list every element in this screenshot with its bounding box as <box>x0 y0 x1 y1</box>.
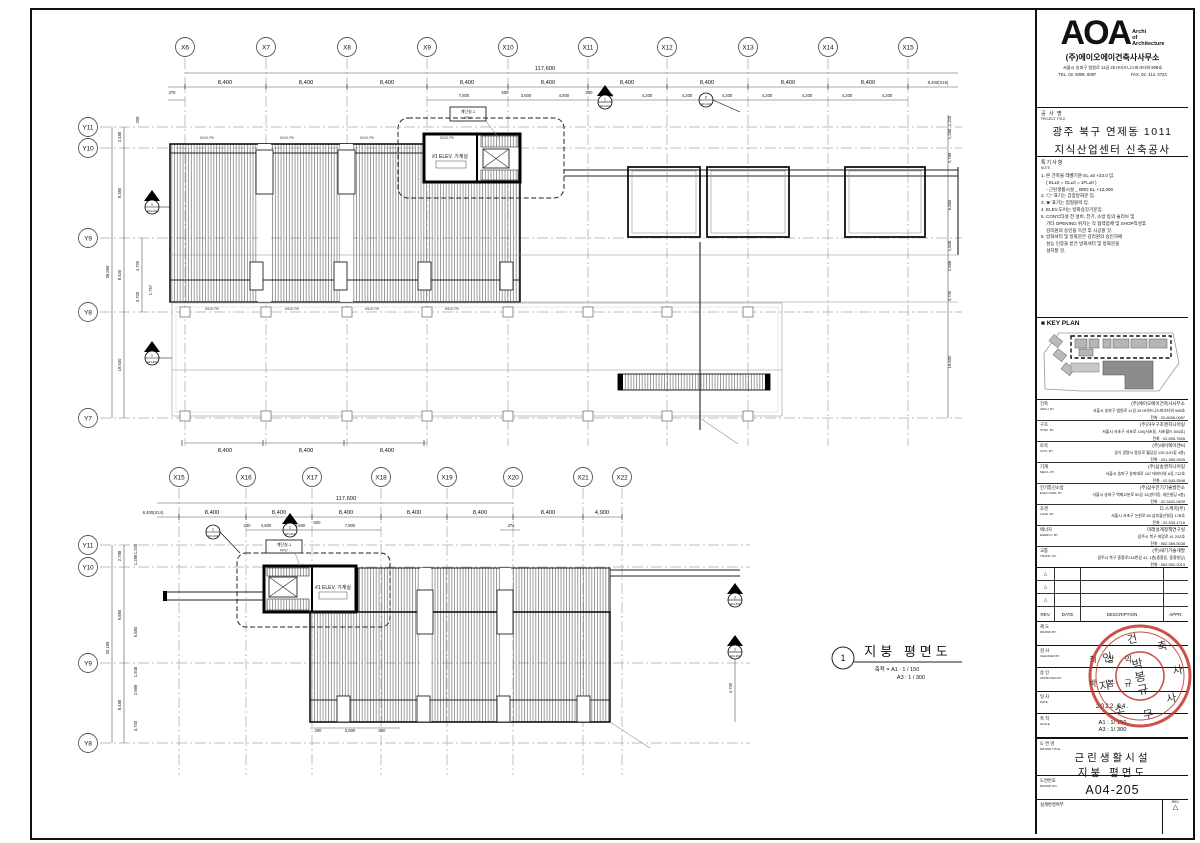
dim-sub: 200 <box>586 90 594 95</box>
section-marker: 1A04-202 <box>144 190 170 214</box>
scale-row: 축 척SCALE. A1 : 1/ 150 A3 : 1/ 300 <box>1037 714 1188 738</box>
dim: 6,880 <box>133 626 138 637</box>
consultant-energy: 에너지ENERGY. BY미래설계정책연구실광주시 북구 희망로 41 202호… <box>1037 526 1188 547</box>
roof-drain-box <box>417 590 433 634</box>
dim-sub: 4,200 <box>642 93 653 98</box>
project-title-line1: 광주 북구 연제동 1011 <box>1041 124 1184 139</box>
svg-text:A04-202: A04-202 <box>208 534 219 538</box>
grid-bubble: Y10 <box>82 146 94 153</box>
dim: 8,400 <box>299 80 314 86</box>
dim: 208 <box>135 116 140 124</box>
dim: 8,400 <box>218 80 233 86</box>
roof-hatch-bottom <box>310 612 610 722</box>
roof-drain-box <box>256 150 273 194</box>
dim: 4,700 <box>135 260 140 271</box>
dim: 3,700 <box>947 290 952 301</box>
dim: 1,200 <box>133 543 138 554</box>
dim: 8,400 <box>218 448 233 454</box>
grid-bubble: X13 <box>742 45 754 52</box>
drawing-caption: 1 지붕 평면도 축척 = A1 : 1 / 150 A3 : 1 / 300 <box>832 644 962 681</box>
scale-value-a1: A1 : 1/ 150 <box>1041 720 1184 726</box>
grid-bubble: X20 <box>507 475 519 482</box>
caption-title: 지붕 평면도 <box>864 644 951 659</box>
project-title-section: 공 사 명 PROJECT TITLE. 광주 북구 연제동 1011 지식산업… <box>1037 108 1188 157</box>
roof-frame <box>845 167 925 237</box>
note-line: 1. 본 건축물 레벨기준 EL ±0 +23.0 임. <box>1041 173 1184 180</box>
drawing-number: A04-205 <box>1041 783 1184 797</box>
dim: 2,988 <box>133 684 138 695</box>
drawing-title-line1: 근린생활시설 <box>1041 750 1184 765</box>
date-value: 2022.04. <box>1041 703 1184 710</box>
grid-bubble: X16 <box>240 475 252 482</box>
grid-bubble: X6 <box>181 45 189 52</box>
dim: 8,400 <box>117 269 122 280</box>
elev-room-label: #1 ELEV. 기계실 <box>432 153 468 160</box>
dim: 8,400 <box>407 510 422 516</box>
notes-label: 특기사항 <box>1041 159 1184 166</box>
roof-hatch-band <box>358 568 610 612</box>
caption-scale-1: 축척 = A1 : 1 / 150 <box>875 665 920 673</box>
dim: 3,700 <box>133 720 138 731</box>
dim-sub: 3,600 <box>521 93 532 98</box>
revision-row: △ <box>1037 581 1188 594</box>
roof-drain-box <box>500 262 513 290</box>
drain-label: Ø100 PB <box>365 307 379 311</box>
dim: 8,400 <box>205 510 220 516</box>
scale-value-a3: A3 : 1/ 300 <box>1041 727 1184 733</box>
dim: 1,288 <box>947 128 952 139</box>
revision-row: △ <box>1037 594 1188 607</box>
caption-number: 1 <box>840 653 845 663</box>
section-marker: 1A04-203 <box>727 635 743 659</box>
note-line: 5. CON'C타설 전 설비, 전기, 소방 등의 슬리브 및 <box>1041 214 1184 221</box>
note-line: 기타 OPENING 위치는 각 협력업체 및 SHOP작성후 <box>1041 221 1184 228</box>
dim-total: 117,600 <box>535 66 556 72</box>
grid-bubble: X15 <box>902 45 914 52</box>
dim: 1,848 <box>133 666 138 677</box>
roof-drain-box <box>250 262 263 290</box>
drain-label: Ø100 PB <box>280 136 294 140</box>
note-line: 성능 인증을 받은 방화셔터 및 방화문을 <box>1041 241 1184 248</box>
grid-bubble: X12 <box>661 45 673 52</box>
dim: 1,200 <box>947 115 952 126</box>
drawn-by-row: 제 도DRAWN BY. <box>1037 622 1188 646</box>
roof-drain-box <box>417 696 430 722</box>
dim-sub: 4,200 <box>722 93 733 98</box>
elev-room-label: #1 ELEV. 기계실 <box>315 584 351 591</box>
drain-label: Ø100 PB <box>445 307 459 311</box>
dim-edge: 8,400(X14) <box>143 510 164 515</box>
roof-drain-box <box>337 696 350 722</box>
grid-bubble: X11 <box>583 45 594 52</box>
date-row: 일 자DATE. 2022.04. <box>1037 692 1188 714</box>
dim-sub: 200 <box>315 728 323 733</box>
dim-edge: 8,400(X16) <box>928 80 949 85</box>
grid-bubble: Y9 <box>84 236 92 243</box>
roof-drain-box <box>577 696 590 722</box>
grid-bubble: X18 <box>375 475 387 482</box>
dim: 8,400 <box>541 80 556 86</box>
dim-ytotal: 39,868 <box>105 265 110 278</box>
grid-bubble: X7 <box>262 45 270 52</box>
note-line: 설치할 것. <box>1041 248 1184 255</box>
dim: 8,400 <box>380 448 395 454</box>
dim: 8,488 <box>117 699 122 710</box>
dim: 8,400 <box>299 448 314 454</box>
lower-roof-outline <box>172 303 782 416</box>
consultants-section: 건축ARCH. BY(주)에이오에이건축사사무소서울시 송파구 법원로 11길 … <box>1037 400 1188 568</box>
drain-label: Ø100 PB <box>360 136 374 140</box>
dim: 8,400 <box>272 510 287 516</box>
dim: 3,700 <box>135 291 140 302</box>
dim: 2,788 <box>117 550 122 561</box>
grid-bubble: Y7 <box>84 416 92 423</box>
consultant-structure: 구조STRU. BY(주)하우구조엔지니어링서울시 서초구 서초로 100(서초… <box>1037 421 1188 442</box>
section-marker: 1A04-202 <box>206 525 240 553</box>
dim-total: 117,600 <box>336 496 357 502</box>
aoa-logo-subtext: Archi of Architecture <box>1132 29 1164 47</box>
project-title-line2: 지식산업센터 신축공사 <box>1041 142 1184 157</box>
dim: 2,988 <box>947 260 952 271</box>
grid-bubble: X10 <box>502 45 514 52</box>
dim: 4,900 <box>595 510 610 516</box>
dim-sub: 375 <box>508 523 516 528</box>
plan-top: X6 X7 X8 X9 X10 X11 X12 X13 X14 X15 Y11 … <box>79 38 963 455</box>
firm-address: 서울시 송파구 법원로 11길 25 H비즈니스파크타워 908호 <box>1041 65 1184 71</box>
notes-section: 특기사항 NOTE. 1. 본 건축물 레벨기준 EL ±0 +23.0 임. … <box>1037 157 1188 318</box>
firm-fax: FAX. 02. 412. 0723 <box>1131 72 1167 77</box>
roof-drain-box <box>334 262 347 290</box>
dim-sub: 4,600 <box>261 523 272 528</box>
louver-strip <box>618 374 770 390</box>
section-marker: 1A04-203 <box>144 341 172 365</box>
dim: 1,288 <box>133 554 138 565</box>
revision-check-row: 설계변경여부 REV.△ <box>1037 800 1188 834</box>
dim: 6,880 <box>947 199 952 210</box>
roof-frame <box>628 167 700 237</box>
dim-ytotal: 20,188 <box>105 641 110 654</box>
section-marker: 2A04-202 <box>699 93 740 112</box>
drain-label: Ø100 PB <box>205 307 219 311</box>
revision-row: △ <box>1037 568 1188 581</box>
note-line: 4. ELEV.도어는 방화승강기문임. <box>1041 207 1184 214</box>
firm-name: (주)에이오에이건축사사무소 <box>1041 52 1184 63</box>
dim: 1,848 <box>947 240 952 251</box>
svg-text:계단실-1: 계단실-1 <box>461 108 476 114</box>
roof-drain-box <box>418 262 431 290</box>
consultant-elec-fire: 전기통신소방ELEC/ FIRE. BY(주)삼수전기기술발전소서울시 송파구 … <box>1037 484 1188 505</box>
dim-sub: 7,800 <box>345 523 356 528</box>
grid-bubble: X8 <box>343 45 351 52</box>
grid-bubble: Y8 <box>84 310 92 317</box>
dim-sub: 4,200 <box>882 93 893 98</box>
section-marker: 2A04-203 <box>727 583 743 607</box>
dim-sub: 4,200 <box>802 93 813 98</box>
svg-text:A04-202: A04-202 <box>600 104 611 108</box>
dim: 2,788 <box>947 152 952 163</box>
key-plan-map <box>1041 327 1184 393</box>
logo-section: AOA Archi of Architecture (주)에이오에이건축사사무소… <box>1037 10 1188 108</box>
dim-sub: 600 <box>502 90 510 95</box>
dim-sub: 7,800 <box>459 93 470 98</box>
grid-bubble: X15 <box>173 475 185 482</box>
roof-plan-drawing: X6 X7 X8 X9 X10 X11 X12 X13 X14 X15 Y11 … <box>32 10 1035 834</box>
svg-text:A04-203: A04-203 <box>730 602 741 606</box>
grid-bubble: Y11 <box>83 543 94 550</box>
svg-text:A04-203: A04-203 <box>147 360 158 364</box>
checked-by-row: 검 사CHECKED BY. 최 상 익 <box>1037 646 1188 668</box>
project-label: 공 사 명 <box>1041 110 1184 117</box>
svg-text:A04-202: A04-202 <box>701 102 712 106</box>
dim: 8,400 <box>460 80 475 86</box>
title-block: AOA Archi of Architecture (주)에이오에이건축사사무소… <box>1035 10 1188 834</box>
drain-label: Ø100 PB <box>285 307 299 311</box>
grid-bubble: Y8 <box>84 741 92 748</box>
grid-bubble: Y9 <box>84 661 92 668</box>
roof-drain-box <box>338 150 355 194</box>
key-plan-label: ■ KEY PLAN <box>1041 320 1184 327</box>
dim: 19,600 <box>117 358 122 371</box>
checked-by-value: 최 상 익 <box>1041 654 1184 665</box>
grid-bubble: X14 <box>822 45 834 52</box>
dim-sub: 600 <box>379 728 387 733</box>
firm-tel: TEL. 02. 6006. 0087 <box>1058 72 1096 77</box>
aoa-logo: AOA <box>1061 20 1131 47</box>
dim: 2,488 <box>117 131 122 142</box>
consultant-landscape: 조경LAND. BY디.스케치(주)서울시 서초구 논현로 83 삼호물산빌딩 … <box>1037 505 1188 526</box>
drawing-number-row: 도면번호DRAWN NO. A04-205 <box>1037 776 1188 800</box>
dim-sub: 375 <box>169 90 177 95</box>
revision-header: REV.DATEDESCRIPTIONAPPR. <box>1037 607 1188 621</box>
svg-text:A04-202: A04-202 <box>147 209 158 213</box>
grid-bubble: X17 <box>306 475 318 482</box>
caption-scale-2: A3 : 1 / 300 <box>897 675 925 681</box>
dim: 9,380 <box>117 187 122 198</box>
consultant-civil: 토목CIVIL. BY(주)세이택이앤씨경기 광명시 중앙로 월담길 126 (… <box>1037 442 1188 463</box>
drawing-title-row: 도 면 명DRAWN TITLE. 근린생활시설 지붕 평면도 <box>1037 738 1188 776</box>
roof-drain-box <box>497 696 510 722</box>
svg-text:RTU: RTU <box>280 549 288 553</box>
consultant-mech: 기계MECA. BY(주)삼송엔지니어링서울시 송파구 송파대로 167 테라타… <box>1037 463 1188 484</box>
drain-label: Ø100 PB <box>200 136 214 140</box>
grid-bubble: X21 <box>577 475 589 482</box>
dim-sub: 4,200 <box>682 93 693 98</box>
dim: 9,880 <box>117 609 122 620</box>
approved-by-value: 박 봉 규 <box>1041 678 1184 689</box>
consultant-traffic: 교통TRAFIC. BY(주)세기기술개발광주시 북구 중흥로218번길 41,… <box>1037 547 1188 568</box>
drain-label: Ø100 PB <box>440 136 454 140</box>
plan-bottom: X15 X16 X17 X18 X19 X20 X21 X22 Y11 Y10 … <box>79 468 751 776</box>
grid-bubble: X9 <box>423 45 431 52</box>
dim-sub: 4,800 <box>559 93 570 98</box>
svg-text:A04-203: A04-203 <box>285 532 296 536</box>
dim-sub: 3,600 <box>345 728 356 733</box>
dim: 8,400 <box>781 80 796 86</box>
roof-drain-box <box>497 590 513 634</box>
dim: 8,400 <box>861 80 876 86</box>
key-plan-section: ■ KEY PLAN <box>1037 318 1188 400</box>
dim: 8,400 <box>620 80 635 86</box>
dim: 1,767 <box>148 284 153 295</box>
dim: 8,400 <box>541 510 556 516</box>
dim: 8,400 <box>380 80 395 86</box>
consultant-arch: 건축ARCH. BY(주)에이오에이건축사사무소서울시 송파구 법원로 11길 … <box>1037 400 1188 421</box>
grid-bubble: Y11 <box>83 125 94 132</box>
grid-bubble: Y10 <box>82 565 94 572</box>
dim-sub: 4,200 <box>762 93 773 98</box>
grid-bubble: X19 <box>441 475 453 482</box>
dim-sub: 600 <box>314 520 322 525</box>
dim-sub: 200 <box>244 523 252 528</box>
dim: 19,600 <box>947 355 952 368</box>
revision-table: △ △ △ REV.DATEDESCRIPTIONAPPR. <box>1037 568 1188 622</box>
approved-by-row: 승 인APPROVED BY. 박 봉 규 <box>1037 668 1188 692</box>
grid-bubble: X22 <box>616 475 628 482</box>
svg-text:A04-203: A04-203 <box>730 654 741 658</box>
svg-text:계단실-1: 계단실-1 <box>277 541 292 547</box>
dim: 4,700 <box>728 682 733 693</box>
dim: 8,400 <box>339 510 354 516</box>
dim: 8,400 <box>700 80 715 86</box>
dim-sub: 4,200 <box>842 93 853 98</box>
dim: 8,400 <box>473 510 488 516</box>
note-line: ( EL±0 = GL±0 = 1FL±0 ) <box>1041 180 1184 187</box>
